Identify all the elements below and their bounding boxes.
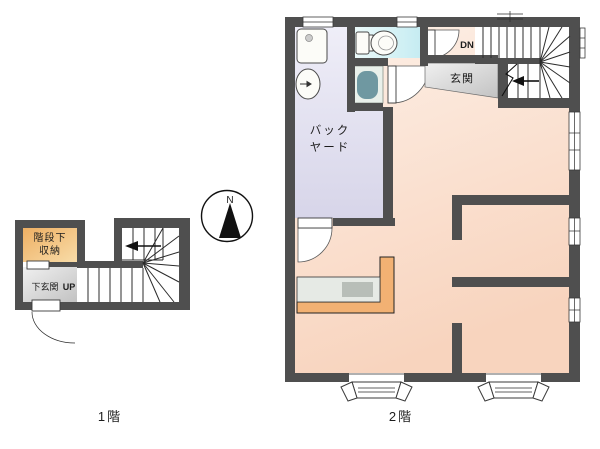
floor2-down-label: DN bbox=[460, 40, 474, 51]
floor2-backyard-label-line1: バック bbox=[310, 124, 351, 137]
bay-window bbox=[478, 373, 549, 401]
floor2-entrance-label: 玄関 bbox=[450, 71, 474, 85]
floor2-plan: バック ヤード 玄関 DN bbox=[285, 11, 585, 401]
floor1-storage-label-line1: 階段下 bbox=[34, 231, 67, 244]
shower-pan-icon bbox=[297, 29, 327, 63]
floor1-plan: 階段下 収納 下玄関 UP bbox=[15, 218, 190, 343]
compass-icon: N bbox=[202, 191, 253, 242]
kitchen-sink-icon bbox=[342, 282, 373, 297]
floor2-caption: 2階 bbox=[389, 409, 413, 424]
floor1-storage-door bbox=[27, 261, 49, 269]
toilet-icon bbox=[356, 31, 397, 55]
floorplan-drawing: 階段下 収納 下玄関 UP N bbox=[0, 0, 600, 449]
floor1-storage-label-line2: 収納 bbox=[39, 244, 61, 257]
floorplan-canvas: 階段下 収納 下玄関 UP N bbox=[0, 0, 600, 449]
floor1-entrance-label: 下玄関 bbox=[31, 281, 58, 292]
floor1-caption: 1階 bbox=[98, 409, 122, 424]
washing-machine-icon bbox=[357, 71, 378, 99]
drain-icon bbox=[306, 35, 313, 42]
floor1-up-label: UP bbox=[63, 282, 76, 292]
bay-window bbox=[341, 373, 412, 401]
floor2-backyard-label-line2: ヤード bbox=[310, 142, 351, 154]
floor2-washer-space bbox=[354, 66, 383, 103]
